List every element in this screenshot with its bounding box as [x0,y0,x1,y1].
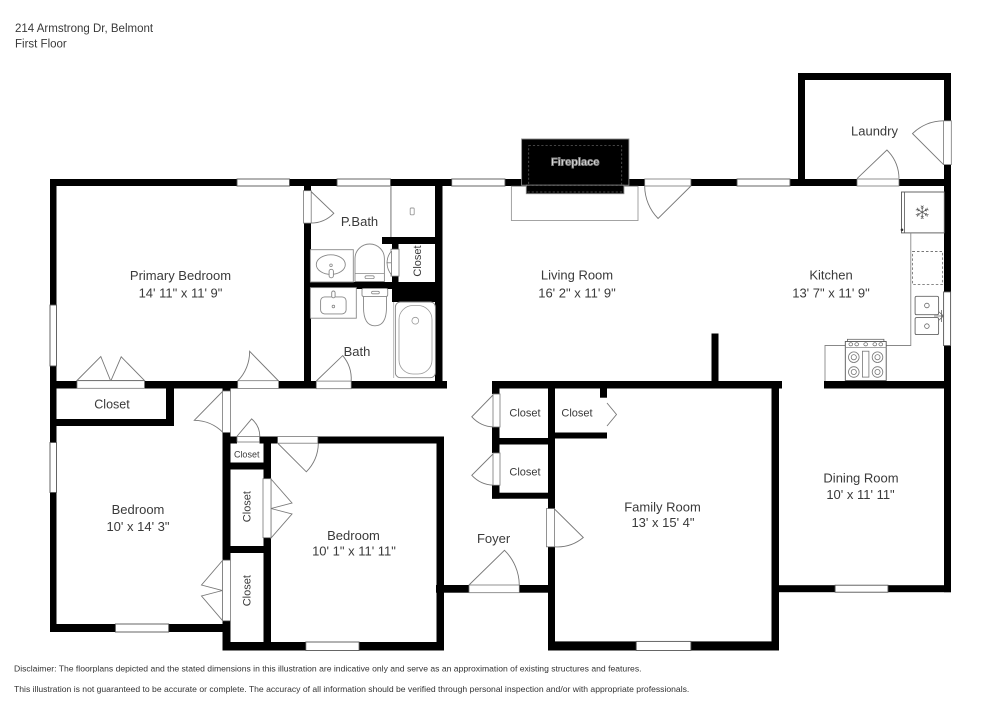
svg-text:13' 7" x 11' 9": 13' 7" x 11' 9" [792,286,870,301]
svg-text:10' x 11' 11": 10' x 11' 11" [826,487,895,502]
svg-text:Fireplace: Fireplace [551,157,599,169]
svg-text:Closet: Closet [412,245,424,276]
svg-text:First Floor: First Floor [15,39,67,51]
svg-text:16' 2" x 11' 9": 16' 2" x 11' 9" [538,286,616,301]
svg-text:Closet: Closet [94,398,130,412]
svg-text:Dining Room: Dining Room [823,471,898,486]
svg-text:Closet: Closet [509,407,540,419]
svg-text:Living Room: Living Room [541,268,613,283]
svg-text:Kitchen: Kitchen [809,268,852,283]
svg-text:13' x 15' 4": 13' x 15' 4" [631,515,694,530]
svg-text:214 Armstrong Dr, Belmont: 214 Armstrong Dr, Belmont [15,23,154,35]
svg-text:This illustration is not guara: This illustration is not guaranteed to b… [14,684,689,694]
svg-text:Closet: Closet [242,575,254,606]
svg-text:P.Bath: P.Bath [341,214,378,229]
svg-text:14' 11" x 11' 9": 14' 11" x 11' 9" [139,286,223,301]
svg-text:Disclaimer: The floorplans dep: Disclaimer: The floorplans depicted and … [14,664,642,674]
svg-text:Foyer: Foyer [477,531,511,546]
svg-text:10' 1" x 11' 11": 10' 1" x 11' 11" [312,544,396,559]
svg-text:Closet: Closet [234,450,260,460]
svg-text:Bedroom: Bedroom [327,528,380,543]
svg-text:Primary Bedroom: Primary Bedroom [130,268,231,283]
svg-text:Closet: Closet [561,407,592,419]
svg-text:10' x 14' 3": 10' x 14' 3" [106,519,169,534]
svg-text:Closet: Closet [509,466,540,478]
svg-text:Bath: Bath [344,344,371,359]
svg-text:Bedroom: Bedroom [112,502,165,517]
svg-text:Closet: Closet [242,491,254,522]
svg-text:Laundry: Laundry [851,124,898,139]
svg-text:Family Room: Family Room [624,500,701,515]
